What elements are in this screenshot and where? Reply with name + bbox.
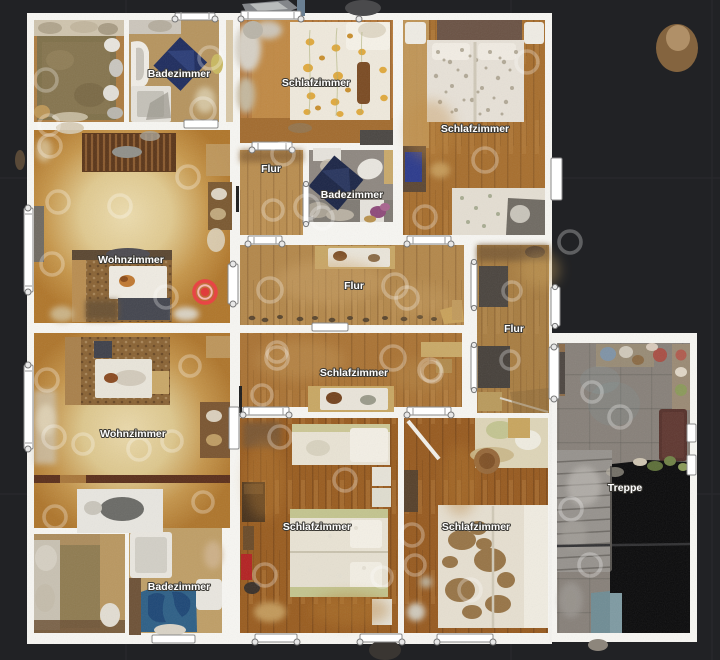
svg-text:Wohnzimmer: Wohnzimmer xyxy=(98,254,164,266)
svg-text:Flur: Flur xyxy=(344,280,364,292)
svg-text:Schlafzimmer: Schlafzimmer xyxy=(442,521,510,533)
svg-text:Badezimmer: Badezimmer xyxy=(148,581,210,593)
svg-text:Flur: Flur xyxy=(504,323,524,335)
svg-text:Badezimmer: Badezimmer xyxy=(148,68,210,80)
svg-text:Schlafzimmer: Schlafzimmer xyxy=(441,123,509,135)
svg-text:Schlafzimmer: Schlafzimmer xyxy=(320,367,388,379)
svg-text:Treppe: Treppe xyxy=(608,482,643,494)
svg-text:Schlafzimmer: Schlafzimmer xyxy=(282,77,350,89)
svg-text:Badezimmer: Badezimmer xyxy=(321,189,383,201)
svg-text:Flur: Flur xyxy=(261,163,281,175)
svg-text:Wohnzimmer: Wohnzimmer xyxy=(100,428,166,440)
svg-text:Schlafzimmer: Schlafzimmer xyxy=(283,521,351,533)
